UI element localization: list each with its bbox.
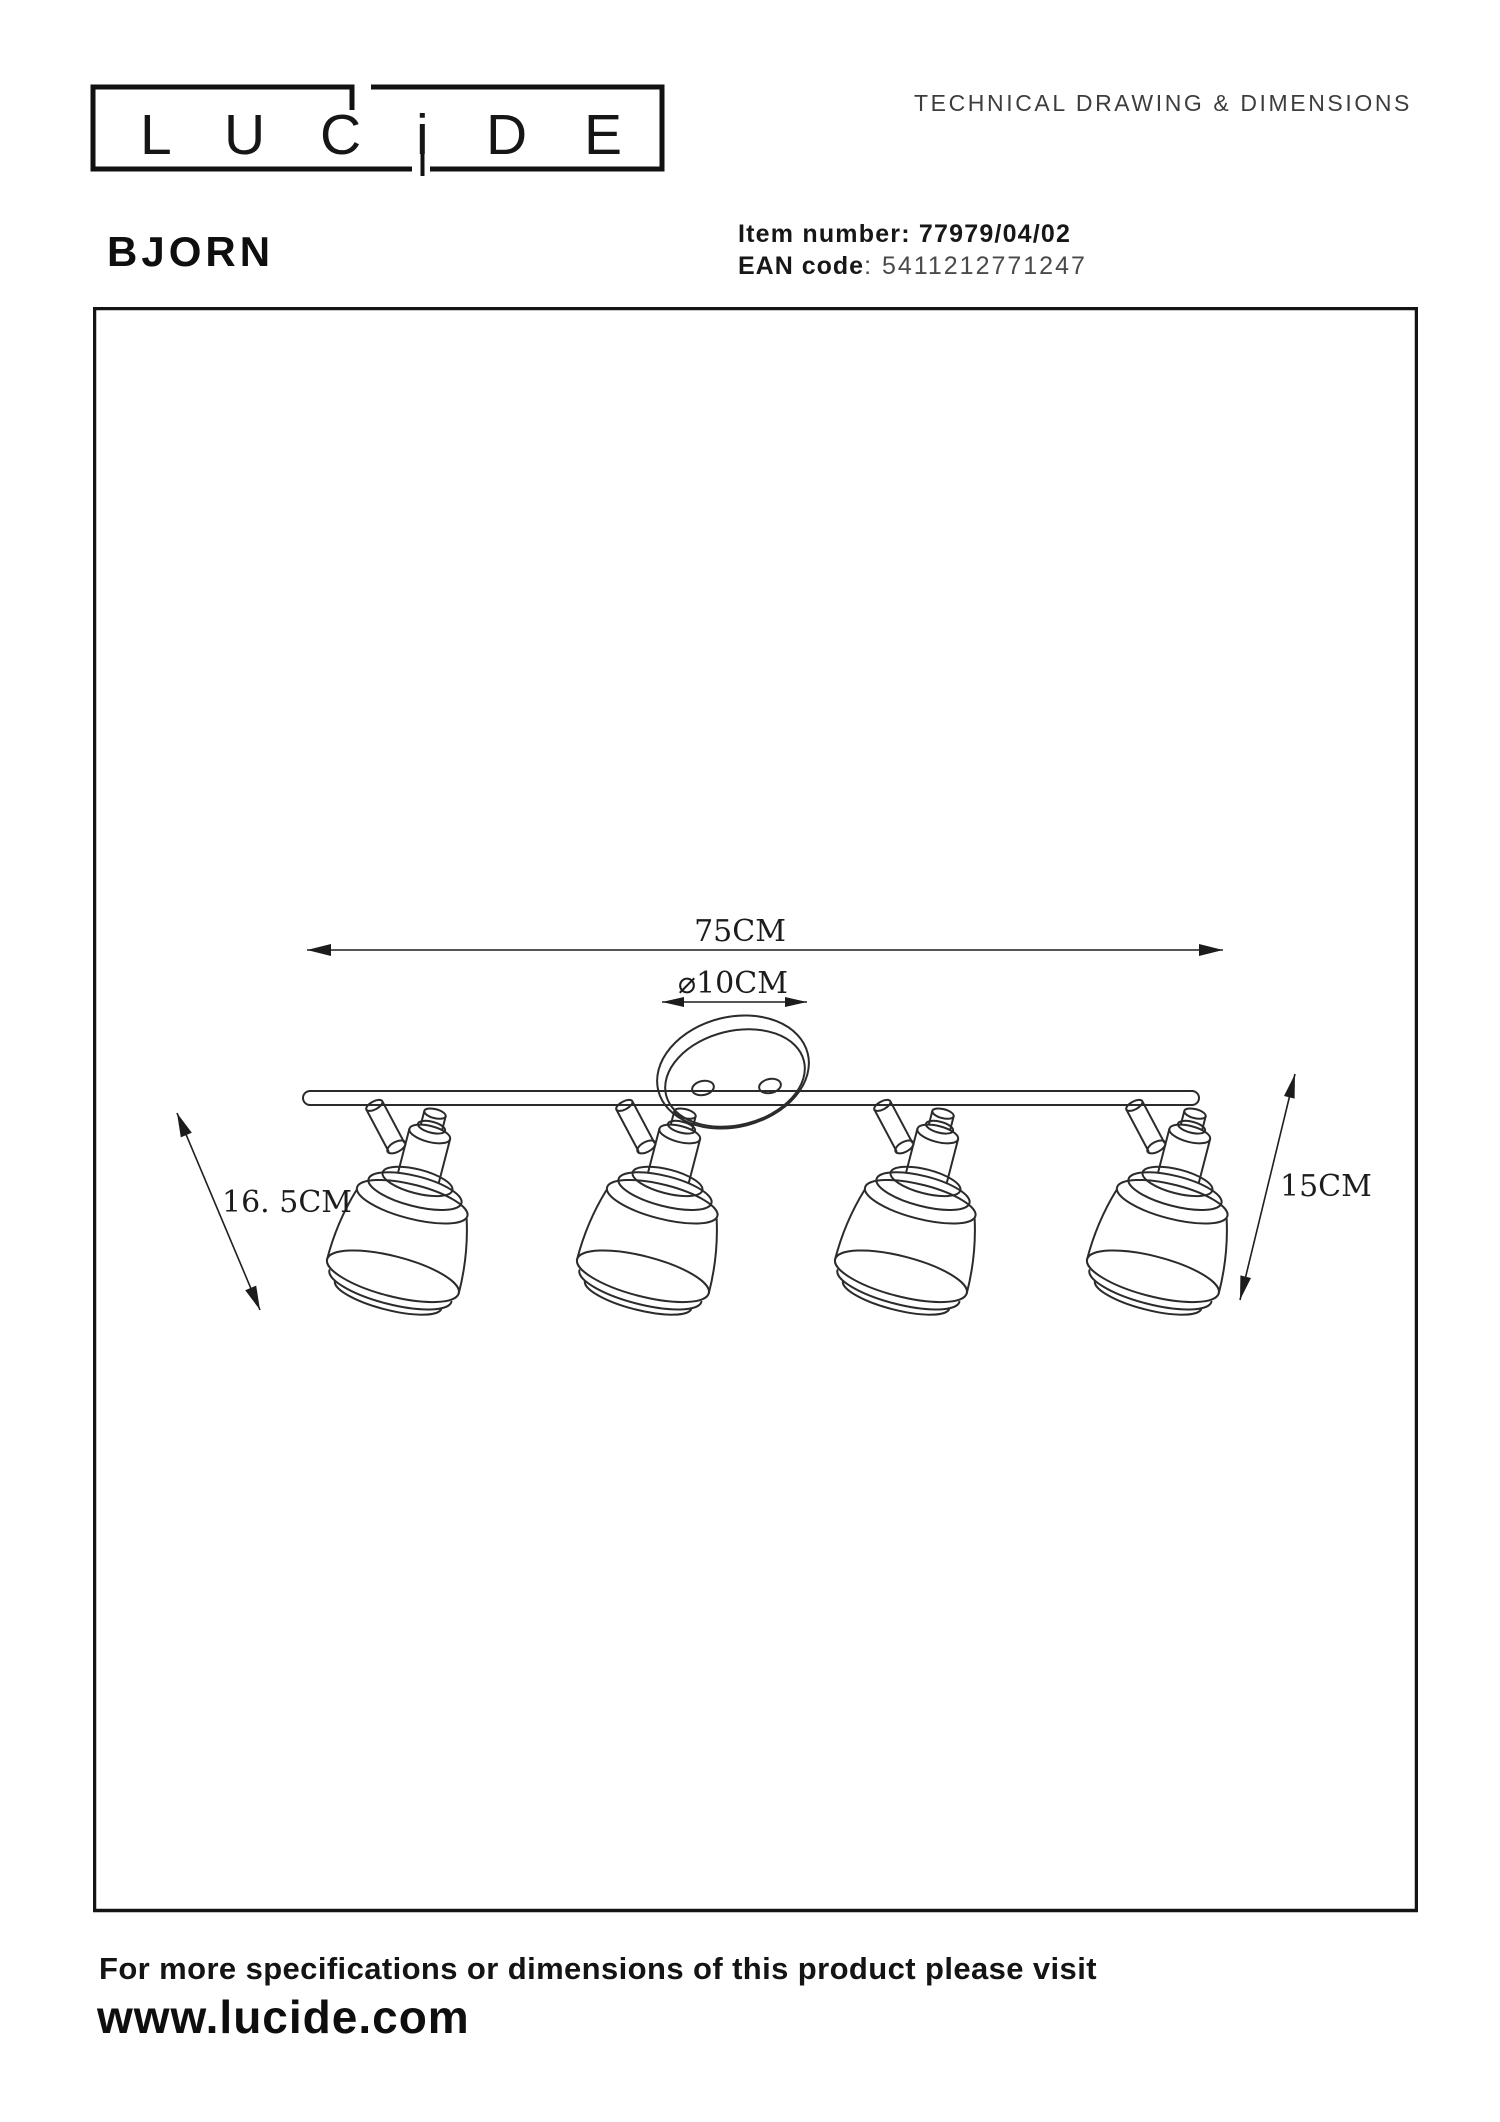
- logo-letter-c: C: [320, 103, 361, 167]
- item-number-value: 77979/04/02: [919, 220, 1071, 248]
- technical-drawing: 75CM ⌀10CM 16. 5CM 15CM: [93, 307, 1418, 1913]
- doc-type-title: TECHNICAL DRAWING & DIMENSIONS: [914, 90, 1412, 117]
- spotlight-3: [827, 1092, 1010, 1326]
- brand-logo: L U C i D E: [55, 45, 685, 190]
- dim-spot-height: 16. 5CM: [177, 1113, 352, 1310]
- dim-spot-height-label: 16. 5CM: [222, 1185, 352, 1220]
- dim-overall-height-label: 15CM: [1280, 1169, 1372, 1204]
- dim-overall-height: 15CM: [1240, 1074, 1372, 1300]
- diameter-value: 10CM: [696, 966, 788, 1001]
- item-number-label: Item number:: [738, 220, 911, 248]
- ean-label: EAN code: [738, 252, 864, 280]
- technical-drawing-sheet: L U C i D E TECHNICAL DRAWING & DIMENSIO…: [0, 0, 1500, 2122]
- product-name: BJORN: [107, 228, 274, 276]
- item-number-row: Item number: 77979/04/02: [738, 219, 1087, 251]
- product-id-block: Item number: 77979/04/02 EAN code: 54112…: [738, 219, 1087, 282]
- ean-row: EAN code: 5411212771247: [738, 251, 1087, 283]
- diameter-symbol: ⌀: [678, 966, 696, 1001]
- logo-letter-i: i: [416, 103, 429, 167]
- dim-bar-length: 75CM: [307, 914, 1223, 956]
- website-url: www.lucide.com: [97, 1990, 470, 2044]
- ean-value: 5411212771247: [882, 252, 1087, 280]
- dim-canopy-diameter-label: ⌀10CM: [678, 966, 788, 1001]
- logo-letter-d: D: [486, 103, 527, 167]
- footer-note: For more specifications or dimensions of…: [99, 1951, 1097, 1987]
- spotlight-4: [1079, 1092, 1262, 1326]
- logo-letter-u: U: [224, 103, 265, 167]
- dim-canopy-diameter: ⌀10CM: [662, 966, 807, 1007]
- ean-separator: :: [864, 252, 882, 280]
- logo-letter-l: L: [140, 103, 172, 167]
- dim-bar-length-label: 75CM: [694, 914, 786, 949]
- logo-letter-e: E: [584, 103, 622, 167]
